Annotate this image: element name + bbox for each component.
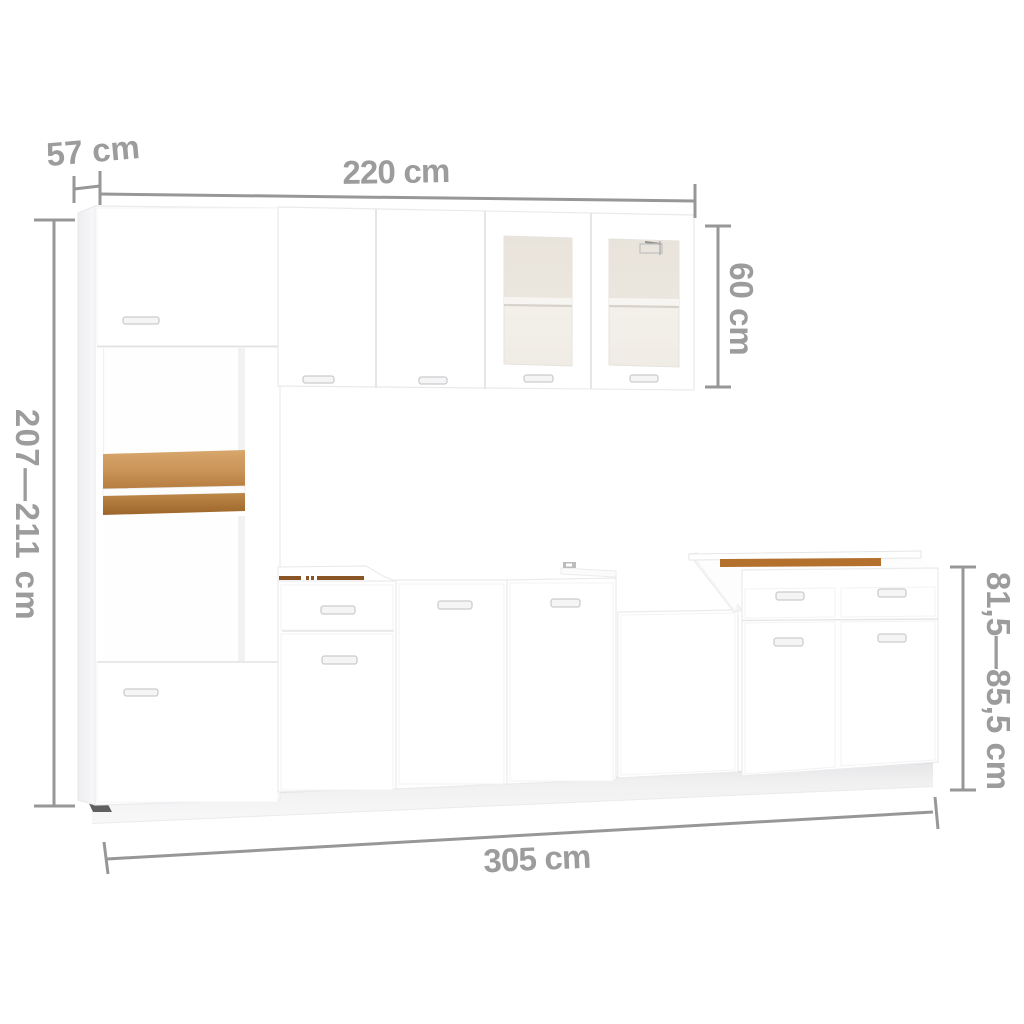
svg-text:81,5—85,5 cm: 81,5—85,5 cm [980, 572, 1017, 790]
svg-text:220 cm: 220 cm [342, 152, 450, 191]
svg-text:207—211 cm: 207—211 cm [9, 409, 46, 621]
svg-text:60 cm: 60 cm [723, 262, 760, 356]
svg-text:305 cm: 305 cm [483, 838, 592, 880]
